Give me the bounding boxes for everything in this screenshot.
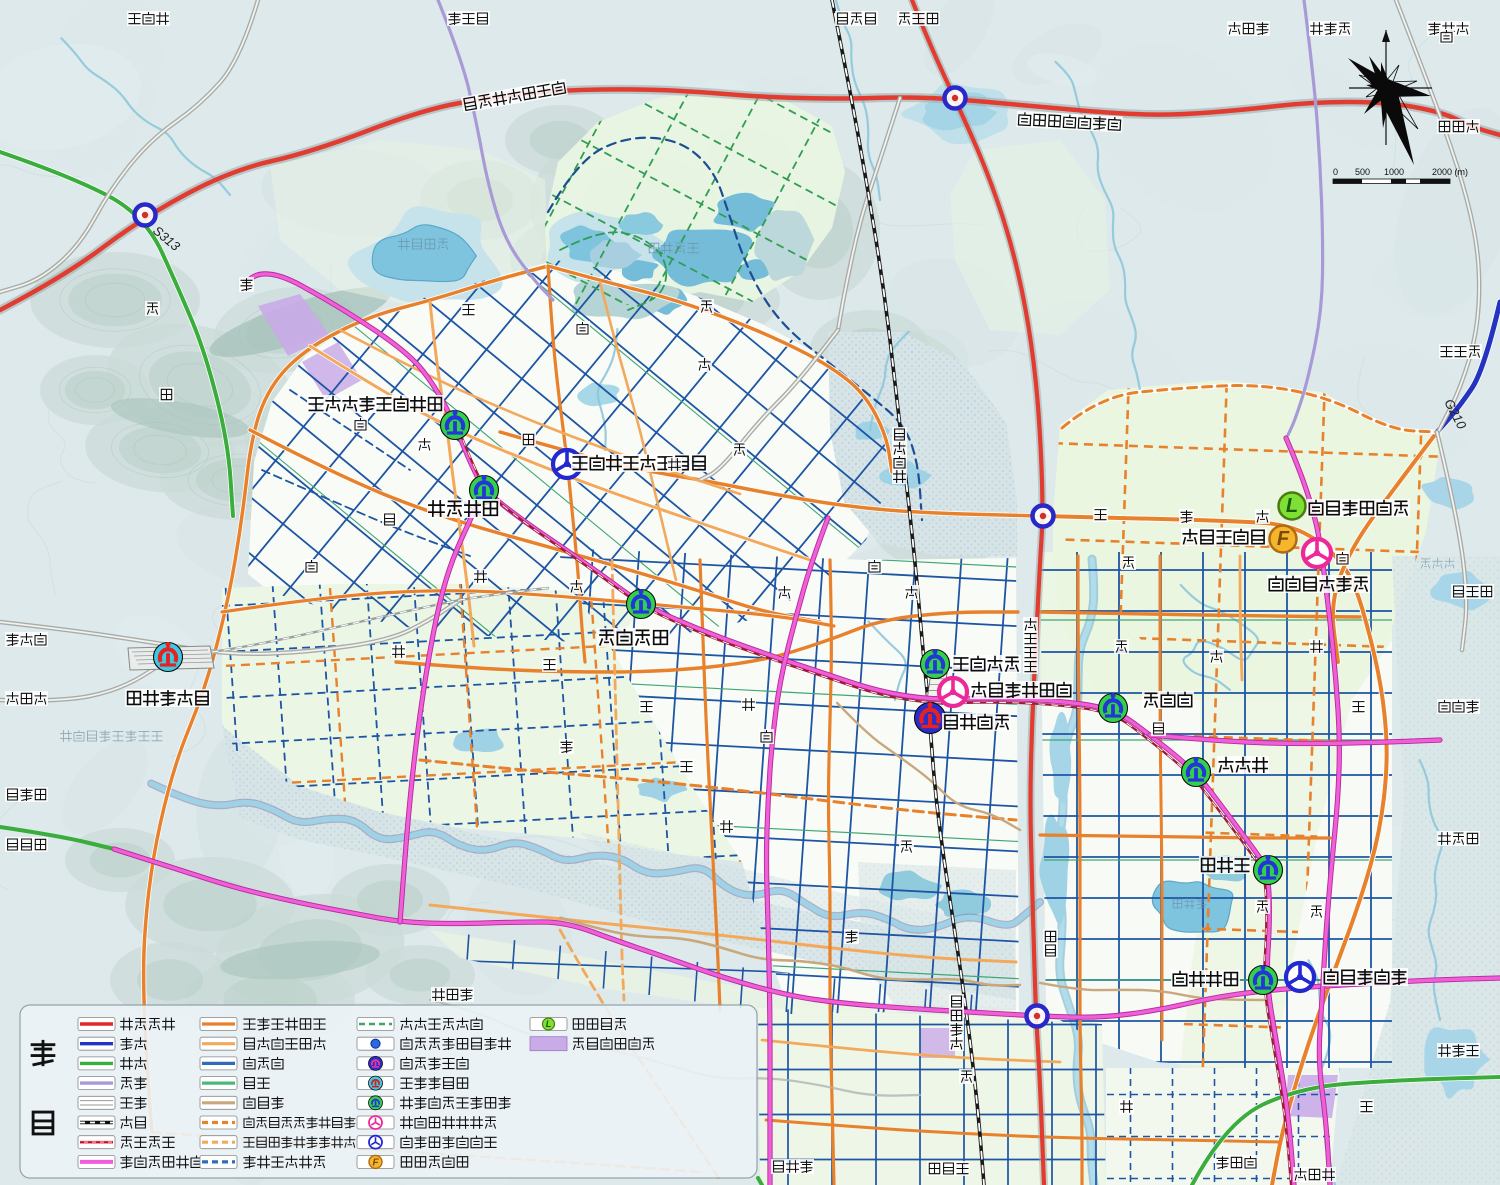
svg-text:L: L <box>1286 495 1298 517</box>
svg-text:F: F <box>372 1157 379 1168</box>
svg-text:L: L <box>546 1019 552 1029</box>
svg-text:2000 (m): 2000 (m) <box>1432 167 1468 177</box>
svg-text:500: 500 <box>1355 167 1370 177</box>
svg-text:0: 0 <box>1333 167 1338 177</box>
svg-text:F: F <box>1277 528 1290 550</box>
svg-text:1000: 1000 <box>1384 167 1404 177</box>
